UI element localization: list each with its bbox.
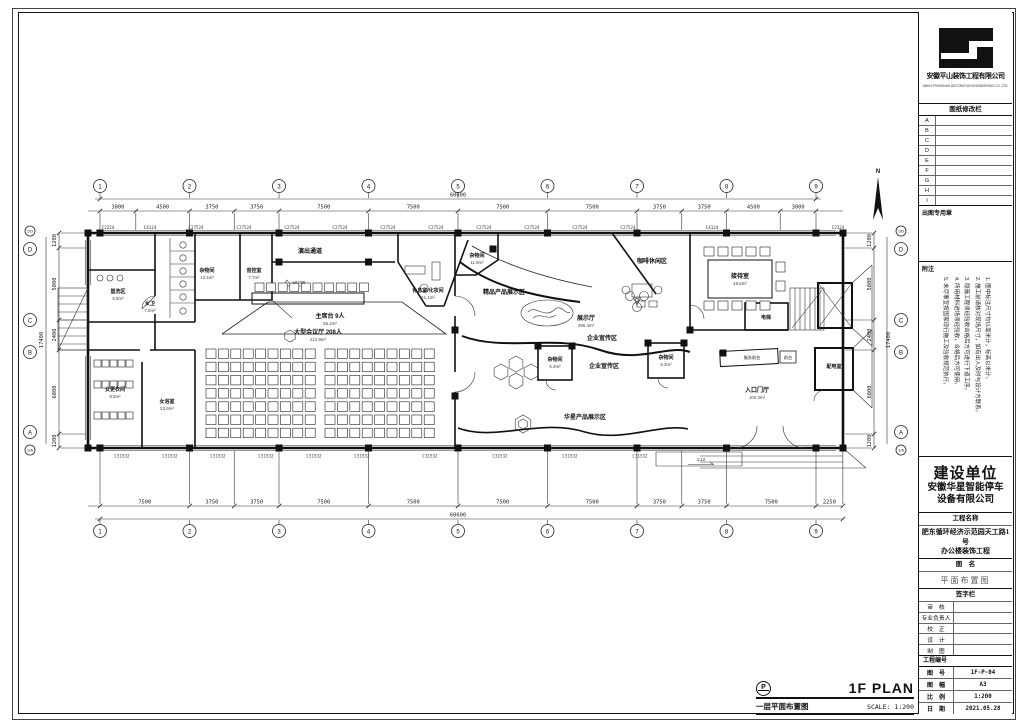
dim-label: 3750 bbox=[653, 500, 666, 506]
revision-row: E bbox=[919, 156, 1012, 166]
plan-scale: SCALE: 1:200 bbox=[867, 703, 914, 711]
dim-label: 3750 bbox=[653, 205, 666, 211]
signature-row: 校 正 bbox=[919, 624, 1012, 635]
dim-label: C27524 bbox=[236, 225, 252, 230]
drawing-name-label: 图 名 bbox=[919, 559, 1012, 572]
design-company-name-en: ANHUI PINGSHAN DECORATION ENGINEERING CO… bbox=[923, 84, 1008, 88]
plan-title-en: 1F PLAN bbox=[849, 680, 914, 696]
signature-role: 审 核 bbox=[919, 602, 954, 612]
level-zero-label: ±0.000 bbox=[293, 280, 306, 285]
signature-cell bbox=[954, 624, 1012, 634]
drawing-sheet: N 30004500375037507500750075007500375037… bbox=[0, 0, 1026, 726]
dim-label: 7500 bbox=[586, 205, 599, 211]
meta-label: 比 例 bbox=[919, 691, 954, 702]
dim-label: 6 bbox=[546, 530, 550, 536]
room-label: 展示厅 bbox=[577, 314, 595, 322]
plan-title-block: P 1F PLAN 一层平面布置图 SCALE: 1:200 bbox=[756, 680, 914, 715]
dim-label: 2 bbox=[188, 185, 192, 191]
signature-cell bbox=[954, 602, 1012, 612]
dim-label: 1/A bbox=[27, 448, 33, 453]
dim-label: 1/D bbox=[27, 229, 33, 234]
room-area: 11.9m² bbox=[470, 260, 484, 265]
designer-logo-box: 安徽平山装饰工程有限公司 ANHUI PINGSHAN DECORATION E… bbox=[919, 12, 1012, 104]
room-label: 电梯 bbox=[761, 314, 771, 321]
owner-name-line1: 安徽华星智能停车 bbox=[927, 483, 1003, 495]
structural-columns bbox=[85, 230, 847, 452]
signature-row: 专业负责人 bbox=[919, 613, 1012, 624]
signature-label: 签字栏 bbox=[919, 589, 1012, 602]
meta-row: 图 幅A3 bbox=[919, 679, 1012, 691]
revision-cell bbox=[936, 186, 1012, 195]
revision-row: C bbox=[919, 136, 1012, 146]
revision-letter: G bbox=[919, 176, 936, 185]
dim-label: 5800 bbox=[867, 278, 873, 291]
dim-label: 7500 bbox=[407, 500, 420, 506]
meta-row: 图 号1F-P-04 bbox=[919, 667, 1012, 679]
signature-row: 设 计 bbox=[919, 634, 1012, 645]
stamp-area: 出图专用章 bbox=[919, 206, 1012, 262]
project-name-line1: 肥东循环经济示范园天工路1号 bbox=[919, 528, 1012, 548]
dim-label: 6800 bbox=[867, 386, 873, 399]
dim-label: C27524 bbox=[524, 225, 540, 230]
room-label: 华星产品展示区 bbox=[564, 413, 606, 421]
floor-plan: N 30004500375037507500750075007500375037… bbox=[0, 0, 1026, 726]
room-label: 演出通道 bbox=[298, 247, 322, 255]
drawing-number: 1F-P-04 bbox=[954, 667, 1012, 678]
dim-label: 1200 bbox=[52, 234, 58, 247]
project-label: 工程名称 bbox=[919, 513, 1012, 526]
signature-cell bbox=[954, 613, 1012, 623]
dim-label: 5 bbox=[456, 185, 460, 191]
revision-letter: F bbox=[919, 166, 936, 175]
room-area: 13.4m² bbox=[200, 275, 214, 280]
dim-label: 4 bbox=[367, 185, 371, 191]
north-arrow: N bbox=[873, 169, 883, 220]
room-label: 精品产品展示区 bbox=[483, 288, 525, 296]
dim-label: C31532 bbox=[306, 454, 322, 459]
dim-label: A bbox=[28, 430, 32, 436]
signature-role: 校 正 bbox=[919, 624, 954, 634]
dim-label: 7500 bbox=[496, 500, 509, 506]
dim-label: C2324 bbox=[832, 225, 845, 230]
room-area: 48.5m² bbox=[733, 281, 747, 286]
dim-label: 3750 bbox=[698, 205, 711, 211]
room-label: 休息室/化妆间 bbox=[411, 287, 443, 294]
room-label: 企业宣传区 bbox=[586, 334, 617, 342]
owner-name-line2: 设备有限公司 bbox=[927, 495, 1003, 507]
room-label: 大型会议厅 208人 bbox=[294, 328, 343, 336]
signature-cell bbox=[954, 645, 1012, 655]
dim-label: 5 bbox=[456, 530, 460, 536]
signature-row: 制 图 bbox=[919, 645, 1012, 655]
dim-label: C27524 bbox=[188, 225, 204, 230]
drawing-date: 2021.05.28 bbox=[954, 703, 1012, 714]
signature-row: 审 核 bbox=[919, 602, 1012, 613]
room-label: 音控室 bbox=[246, 267, 261, 274]
revision-letter: I bbox=[919, 196, 936, 205]
revision-cell bbox=[936, 166, 1012, 175]
dim-label: C31532 bbox=[422, 454, 438, 459]
north-label: N bbox=[876, 169, 880, 175]
dim-label: 1/A bbox=[898, 448, 904, 453]
dim-label: 8 bbox=[725, 530, 729, 536]
room-label: 女浴室 bbox=[159, 398, 174, 405]
room-area: 295.4m² bbox=[578, 323, 595, 328]
dim-label: 1200 bbox=[52, 435, 58, 448]
dim-label: A bbox=[899, 430, 903, 436]
dim-label: 9 bbox=[814, 530, 818, 536]
drawing-scale: 1:200 bbox=[954, 691, 1012, 702]
dim-label: C31532 bbox=[562, 454, 578, 459]
coffee-furniture bbox=[622, 284, 662, 307]
notes-body: 1. 图中标注尺寸均以毫米计，标高以米计。 2. 施工前请核对现场尺寸，如有出入… bbox=[939, 277, 991, 449]
project-name: 肥东循环经济示范园天工路1号 办公楼装饰工程 bbox=[919, 526, 1012, 559]
dim-label: C27524 bbox=[332, 225, 348, 230]
dim-label: C27524 bbox=[380, 225, 396, 230]
signature-cell bbox=[954, 634, 1012, 644]
room-label: 女更衣间 bbox=[105, 386, 125, 393]
sheet-size: A3 bbox=[954, 679, 1012, 690]
room-label: 前台 bbox=[784, 354, 792, 361]
dim-label: 3000 bbox=[111, 205, 124, 211]
revision-row: F bbox=[919, 166, 1012, 176]
dim-label: 3750 bbox=[250, 500, 263, 506]
dim-label: 3750 bbox=[250, 205, 263, 211]
dim-label: 7500 bbox=[586, 500, 599, 506]
meta-label: 日 期 bbox=[919, 703, 954, 714]
dim-label: C31532 bbox=[492, 454, 508, 459]
dim-label: C bbox=[899, 318, 904, 324]
dim-label: 1200 bbox=[867, 234, 873, 247]
room-label: 主席台 9人 bbox=[315, 312, 345, 320]
revision-letter: D bbox=[919, 146, 936, 155]
dim-label: B bbox=[28, 350, 32, 356]
dim-label: C31532 bbox=[354, 454, 370, 459]
dim-label: 2 bbox=[188, 530, 192, 536]
dim-label: 7500 bbox=[138, 500, 151, 506]
room-area: 5.9m² bbox=[112, 296, 124, 301]
dim-label: C27524 bbox=[572, 225, 588, 230]
drawing-name: 平面布置图 bbox=[919, 572, 1012, 589]
room-area: 21.1m² bbox=[421, 295, 435, 300]
room-label: 咖啡休闲区 bbox=[637, 257, 667, 265]
dim-label: 1/D bbox=[898, 229, 904, 234]
dim-label: C31532 bbox=[632, 454, 648, 459]
room-label: 服务前台 bbox=[744, 354, 761, 361]
room-label: 杂物间 bbox=[547, 356, 562, 363]
room-area: 100.3m² bbox=[749, 395, 766, 400]
dim-label: C31532 bbox=[258, 454, 274, 459]
plan-title-cn: 一层平面布置图 bbox=[756, 701, 809, 712]
dim-label: 1 bbox=[98, 185, 102, 191]
signature-role: 设 计 bbox=[919, 634, 954, 644]
meta-row: 日 期2021.05.28 bbox=[919, 703, 1012, 714]
revision-cell bbox=[936, 126, 1012, 135]
note-item: 2. 施工前请核对现场尺寸，如有出入及时与设计方联系。 bbox=[971, 277, 981, 449]
owner-name: 安徽华星智能停车 设备有限公司 bbox=[927, 483, 1003, 507]
hexagon-displays bbox=[285, 330, 538, 433]
dim-label: C27524 bbox=[620, 225, 636, 230]
dim-label: 6 bbox=[546, 185, 550, 191]
revision-cell bbox=[936, 146, 1012, 155]
revision-row: H bbox=[919, 186, 1012, 196]
meta-table: 图 号1F-P-04 图 幅A3 比 例1:200 日 期2021.05.28 bbox=[919, 667, 1012, 714]
note-item: 5. 未尽事宜按国家现行施工及验收规范执行。 bbox=[939, 277, 949, 449]
dim-label: 4500 bbox=[747, 205, 760, 211]
ramp-label: 1:12 bbox=[697, 457, 706, 462]
revision-letter: C bbox=[919, 136, 936, 145]
meta-label: 图 幅 bbox=[919, 679, 954, 690]
room-label: 杂物间 bbox=[199, 267, 214, 274]
dim-label: B bbox=[899, 350, 903, 356]
signature-section: 签字栏 审 核 专业负责人 校 正 设 计 制 图 bbox=[919, 589, 1012, 656]
room-label: 配电室 bbox=[826, 363, 841, 370]
dim-label: 2250 bbox=[823, 500, 836, 506]
signature-role: 专业负责人 bbox=[919, 613, 954, 623]
title-block: 安徽平山装饰工程有限公司 ANHUI PINGSHAN DECORATION E… bbox=[918, 12, 1012, 714]
room-label: 接待室 bbox=[730, 272, 749, 280]
room-label: 盥洗区 bbox=[110, 288, 125, 295]
dim-label: 7500 bbox=[407, 205, 420, 211]
revision-table: A B C D E F G H I bbox=[919, 116, 1012, 206]
revision-table-title: 图纸修改栏 bbox=[919, 104, 1012, 116]
dim-label: C bbox=[28, 318, 33, 324]
company-logo-icon bbox=[939, 28, 993, 68]
meta-row: 比 例1:200 bbox=[919, 691, 1012, 703]
dimension-lines: 3000450037503750750075007500750037503750… bbox=[39, 193, 892, 522]
dim-label: 8 bbox=[725, 185, 729, 191]
dim-label: C31532 bbox=[114, 454, 130, 459]
revision-cell bbox=[936, 196, 1012, 205]
notes-title: 附注 bbox=[922, 264, 934, 273]
dim-label: 7 bbox=[635, 185, 639, 191]
note-item: 3. 隐蔽工程须经验收合格后方可进行下道工序。 bbox=[960, 277, 970, 449]
dim-label: 9 bbox=[814, 185, 818, 191]
revision-cell bbox=[936, 116, 1012, 125]
dim-label: 2400 bbox=[52, 329, 58, 342]
dim-label: 7500 bbox=[765, 500, 778, 506]
dim-label: 4500 bbox=[156, 205, 169, 211]
dim-label: C31532 bbox=[210, 454, 226, 459]
dim-label: 3750 bbox=[205, 205, 218, 211]
room-label: 企业宣传区 bbox=[588, 362, 619, 370]
dim-label: 60600 bbox=[450, 513, 466, 519]
note-item: 4. 所用材料进场须经验收，合格后方可使用。 bbox=[950, 277, 960, 449]
room-area: 212.9m² bbox=[310, 337, 327, 342]
project-name-line2: 办公楼装饰工程 bbox=[919, 547, 1012, 557]
dim-label: D bbox=[28, 247, 33, 253]
dim-label: C2224 bbox=[102, 225, 115, 230]
room-area: 5.3m² bbox=[549, 364, 561, 369]
project-section: 工程名称 肥东循环经济示范园天工路1号 办公楼装饰工程 bbox=[919, 513, 1012, 559]
dim-label: C27524 bbox=[284, 225, 300, 230]
dim-label: 3 bbox=[277, 185, 281, 191]
owner-label: 建设单位 bbox=[933, 462, 997, 483]
room-label: 杂物间 bbox=[469, 252, 484, 259]
revision-cell bbox=[936, 136, 1012, 145]
dim-label: 2400 bbox=[867, 329, 873, 342]
revision-row: B bbox=[919, 126, 1012, 136]
revision-row: D bbox=[919, 146, 1012, 156]
notes-section: 附注 1. 图中标注尺寸均以毫米计，标高以米计。 2. 施工前请核对现场尺寸，如… bbox=[919, 262, 1012, 457]
dim-label: 17400 bbox=[39, 332, 45, 348]
owner-section: 建设单位 安徽华星智能停车 设备有限公司 bbox=[919, 457, 1012, 513]
room-area: 23.9m² bbox=[160, 406, 174, 411]
dim-label: 6800 bbox=[52, 386, 58, 399]
dim-label: D bbox=[899, 247, 904, 253]
dim-label: 3 bbox=[277, 530, 281, 536]
dim-label: 1 bbox=[98, 530, 102, 536]
revision-cell bbox=[936, 156, 1012, 165]
dim-label: 5800 bbox=[52, 278, 58, 291]
room-label: 杂物间 bbox=[658, 354, 673, 361]
design-company-name: 安徽平山装饰工程有限公司 bbox=[927, 71, 1005, 81]
dim-label: 4 bbox=[367, 530, 371, 536]
dim-label: C31532 bbox=[162, 454, 178, 459]
dim-label: 1200 bbox=[867, 435, 873, 448]
revision-letter: B bbox=[919, 126, 936, 135]
dim-label: 17400 bbox=[886, 332, 892, 348]
signature-role: 制 图 bbox=[919, 645, 954, 655]
room-label: 入口门厅 bbox=[744, 386, 769, 394]
dim-label: 7500 bbox=[317, 205, 330, 211]
room-area: 66.4m² bbox=[323, 321, 337, 326]
dim-label: 3750 bbox=[698, 500, 711, 506]
stairs-left bbox=[58, 288, 88, 350]
dim-label: 3750 bbox=[205, 500, 218, 506]
plan-ref-bubble: P bbox=[756, 681, 771, 696]
meta-label: 图 号 bbox=[919, 667, 954, 678]
revision-row: A bbox=[919, 116, 1012, 126]
revision-letter: A bbox=[919, 116, 936, 125]
revision-cell bbox=[936, 176, 1012, 185]
room-area: 5.3m² bbox=[660, 362, 672, 367]
interior-walls bbox=[88, 233, 853, 448]
dim-label: C4124 bbox=[144, 225, 157, 230]
room-area: 7.0m² bbox=[144, 308, 156, 313]
dim-label: 3000 bbox=[792, 205, 805, 211]
dim-label: 7500 bbox=[496, 205, 509, 211]
revision-row: I bbox=[919, 196, 1012, 205]
revision-row: G bbox=[919, 176, 1012, 186]
room-label: 女卫 bbox=[145, 300, 155, 307]
stamp-label: 出图专用章 bbox=[922, 208, 952, 217]
project-no-row: 工程编号 bbox=[919, 656, 1012, 667]
dim-label: C27524 bbox=[428, 225, 444, 230]
note-item: 1. 图中标注尺寸均以毫米计，标高以米计。 bbox=[981, 277, 991, 449]
dim-label: 7 bbox=[635, 530, 639, 536]
dim-label: C4124 bbox=[706, 225, 719, 230]
drawing-name-section: 图 名 平面布置图 bbox=[919, 559, 1012, 589]
room-area: 9.3m² bbox=[109, 394, 121, 399]
room-area: 7.7m² bbox=[248, 275, 260, 280]
dim-label: 7500 bbox=[317, 500, 330, 506]
revision-letter: E bbox=[919, 156, 936, 165]
revision-letter: H bbox=[919, 186, 936, 195]
dim-label: C27524 bbox=[476, 225, 492, 230]
